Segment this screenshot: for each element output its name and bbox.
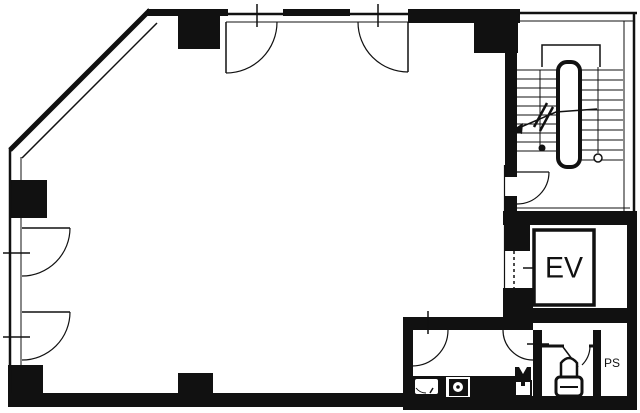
door-swing-arc <box>582 347 590 365</box>
chamfer-wall-outer <box>10 10 150 150</box>
elevator-label: EV <box>545 252 583 285</box>
hand-basin-top <box>515 367 531 381</box>
stair-treads-right <box>580 70 623 160</box>
floor-plan-canvas: EV PS <box>0 0 640 413</box>
door-swing-arc <box>22 312 70 360</box>
appliance-burner-dot <box>456 385 460 389</box>
door-swing-arc <box>517 172 549 204</box>
door-swing-arc <box>358 22 408 72</box>
washroom-left-wall <box>403 330 413 400</box>
chamfer-wall-inner <box>22 23 157 158</box>
toilet-bowl <box>561 358 577 377</box>
hand-basin-tap <box>521 381 525 386</box>
washroom <box>403 311 549 400</box>
stair-left-wall <box>505 13 517 165</box>
floor-plan: EV PS <box>0 0 640 413</box>
main-room-doors <box>22 22 408 360</box>
door-jamb <box>505 165 517 177</box>
sink-basin <box>415 379 438 394</box>
bottom-wall <box>8 393 403 407</box>
stair-bottom-wall <box>503 211 637 225</box>
column <box>9 180 47 218</box>
stair-rail-post <box>594 154 602 162</box>
door-swing-arc <box>503 330 533 360</box>
shaft-bottom-wall <box>530 308 637 323</box>
stair-rail-post <box>539 145 546 152</box>
door-swing-arc <box>226 22 277 73</box>
pipe-shaft: PS <box>593 330 620 397</box>
shaft-wall <box>505 225 530 251</box>
door-jamb <box>505 196 517 212</box>
lobby-toilet-wall <box>533 330 542 397</box>
stair-stringer <box>558 62 580 167</box>
pipe-shaft-label: PS <box>604 356 620 370</box>
toilet-room <box>542 346 597 396</box>
staircase <box>503 13 637 225</box>
column <box>178 9 220 49</box>
pipe-shaft-wall <box>593 330 601 397</box>
top-wall <box>283 9 350 16</box>
bottom-wall <box>403 396 637 410</box>
door-swing-arc <box>22 228 70 276</box>
door-swing-arc <box>412 330 448 366</box>
washroom-top-wall <box>403 317 533 330</box>
elevator: EV <box>503 165 637 330</box>
